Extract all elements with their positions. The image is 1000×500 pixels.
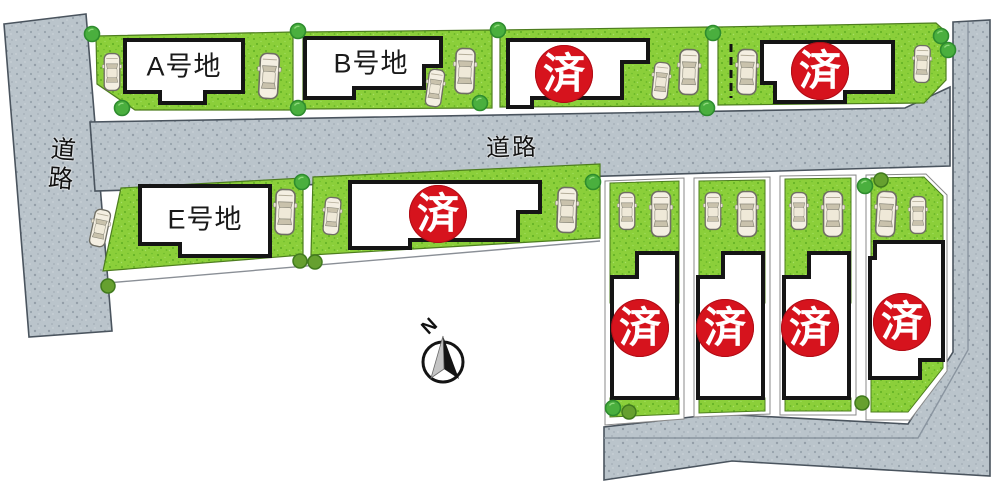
car-icon <box>649 192 673 237</box>
car-icon <box>912 45 933 83</box>
sold-badge: 済 <box>781 299 839 357</box>
tree-icon <box>706 26 721 41</box>
bush-icon <box>874 173 888 187</box>
car-icon <box>676 49 701 95</box>
tree-icon <box>934 29 949 44</box>
sold-badge: 済 <box>611 299 669 357</box>
compass-icon <box>423 336 463 382</box>
bush-icon <box>855 396 869 410</box>
lot-label-e: E号地 <box>167 207 242 234</box>
sold-badge: 済 <box>696 299 754 357</box>
tree-icon <box>858 179 873 194</box>
lot-label-a: A号地 <box>146 54 221 81</box>
car-icon <box>908 197 927 234</box>
car-icon <box>617 193 636 230</box>
tree-icon <box>295 175 310 190</box>
road-label-left: 道路 <box>40 135 81 196</box>
car-icon <box>102 54 121 91</box>
tree-icon <box>85 27 100 42</box>
car-icon <box>272 189 297 235</box>
car-icon <box>735 192 759 237</box>
sold-badge: 済 <box>409 185 467 243</box>
sold-badge: 済 <box>873 293 931 351</box>
tree-icon <box>700 101 715 116</box>
car-icon <box>821 192 845 237</box>
car-icon <box>703 193 722 230</box>
bush-icon <box>622 405 636 419</box>
car-icon <box>873 191 899 237</box>
car-icon <box>452 48 477 94</box>
sold-badge: 済 <box>535 45 593 103</box>
road-label-middle: 道路 <box>486 127 539 163</box>
site-plan: A号地 B号地 E号地 済 済 済 済 済 済 済 道路 道路 N <box>0 0 1000 500</box>
tree-icon <box>291 24 306 39</box>
car-icon <box>734 49 759 95</box>
tree-icon <box>941 43 956 58</box>
tree-icon <box>606 401 621 416</box>
tree-icon <box>491 23 506 38</box>
car-icon <box>256 53 282 99</box>
tree-icon <box>473 96 488 111</box>
car-icon <box>789 193 808 230</box>
bush-icon <box>101 279 115 293</box>
bush-icon <box>308 255 322 269</box>
bush-icon <box>293 254 307 268</box>
car-icon <box>554 187 579 233</box>
tree-icon <box>291 101 306 116</box>
lot-label-b: B号地 <box>333 51 408 78</box>
tree-icon <box>586 175 601 190</box>
sold-badge: 済 <box>791 42 849 100</box>
tree-icon <box>115 101 130 116</box>
